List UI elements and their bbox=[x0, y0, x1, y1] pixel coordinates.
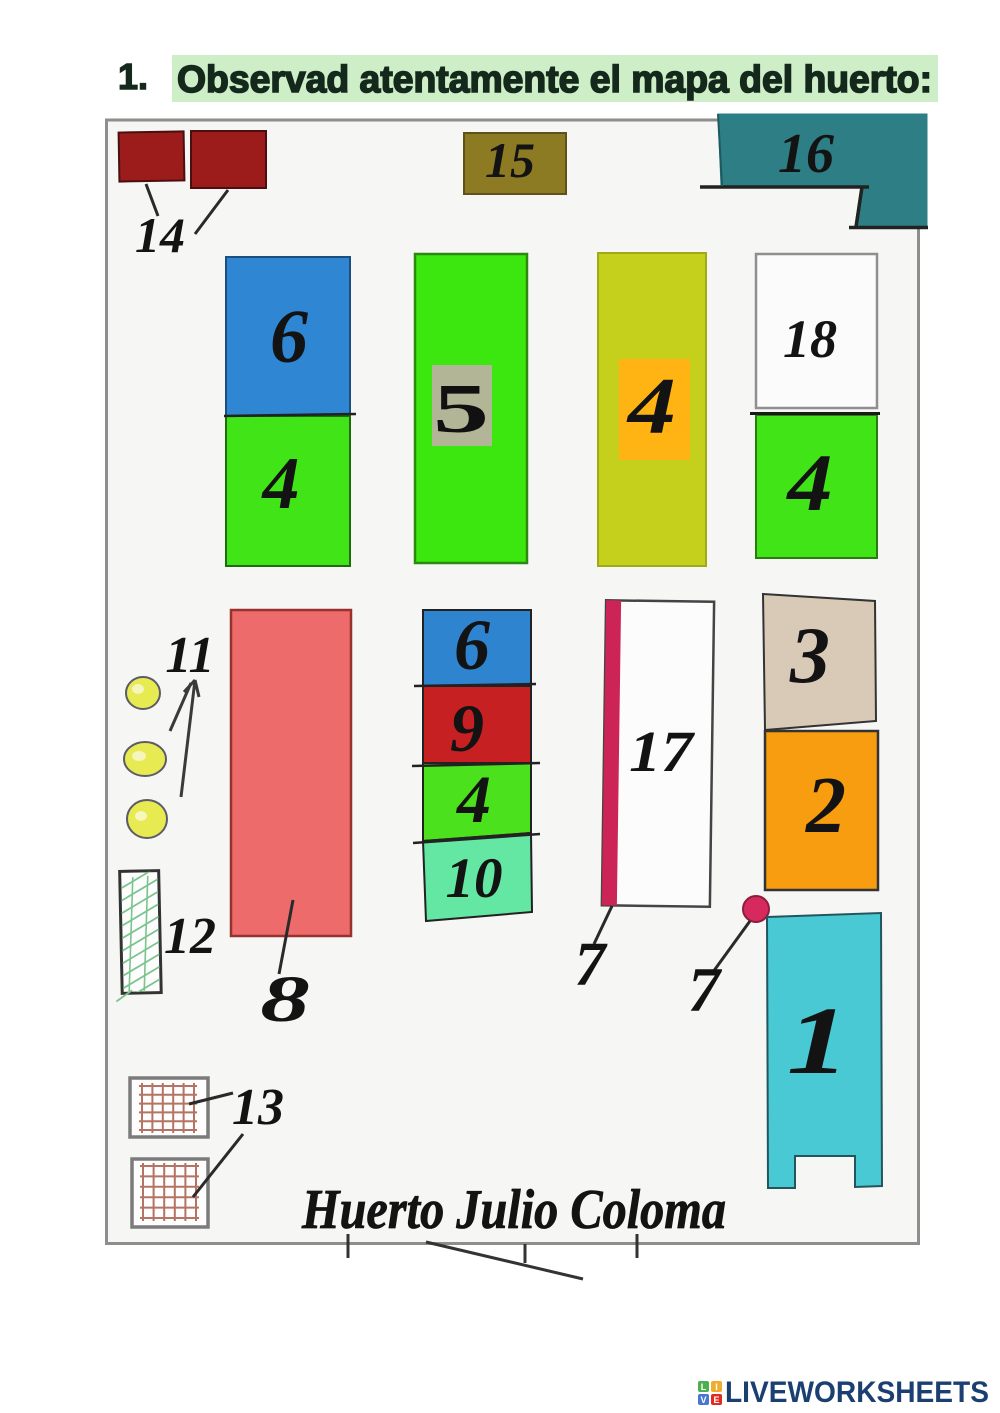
svg-text:2: 2 bbox=[805, 762, 846, 850]
svg-text:7: 7 bbox=[575, 931, 609, 999]
svg-text:4: 4 bbox=[626, 362, 676, 451]
svg-text:1: 1 bbox=[787, 988, 849, 1094]
svg-text:6: 6 bbox=[270, 295, 308, 379]
svg-text:L: L bbox=[701, 1382, 707, 1392]
svg-text:14: 14 bbox=[135, 207, 185, 263]
svg-text:4: 4 bbox=[261, 443, 300, 525]
svg-text:6: 6 bbox=[454, 605, 490, 685]
svg-text:E: E bbox=[713, 1395, 719, 1405]
svg-text:I: I bbox=[715, 1382, 718, 1392]
svg-text:13: 13 bbox=[232, 1079, 284, 1136]
svg-text:Observad atentamente el mapa d: Observad atentamente el mapa del huerto: bbox=[177, 59, 932, 101]
svg-text:V: V bbox=[700, 1395, 706, 1405]
svg-text:3: 3 bbox=[789, 612, 830, 700]
svg-text:17: 17 bbox=[629, 721, 695, 785]
svg-text:LIVEWORKSHEETS: LIVEWORKSHEETS bbox=[725, 1376, 989, 1409]
svg-text:5: 5 bbox=[433, 371, 489, 448]
svg-text:7: 7 bbox=[688, 954, 723, 1025]
svg-text:1.: 1. bbox=[118, 56, 148, 97]
svg-text:Huerto Julio Coloma: Huerto Julio Coloma bbox=[301, 1179, 726, 1241]
svg-text:10: 10 bbox=[446, 847, 503, 910]
svg-text:12: 12 bbox=[164, 908, 216, 965]
svg-text:4: 4 bbox=[455, 761, 491, 837]
svg-text:4: 4 bbox=[785, 437, 832, 528]
svg-text:18: 18 bbox=[783, 309, 837, 369]
svg-text:8: 8 bbox=[260, 963, 309, 1036]
svg-text:16: 16 bbox=[778, 123, 834, 185]
svg-text:9: 9 bbox=[450, 690, 484, 766]
svg-text:15: 15 bbox=[485, 132, 535, 188]
svg-text:11: 11 bbox=[165, 627, 214, 684]
